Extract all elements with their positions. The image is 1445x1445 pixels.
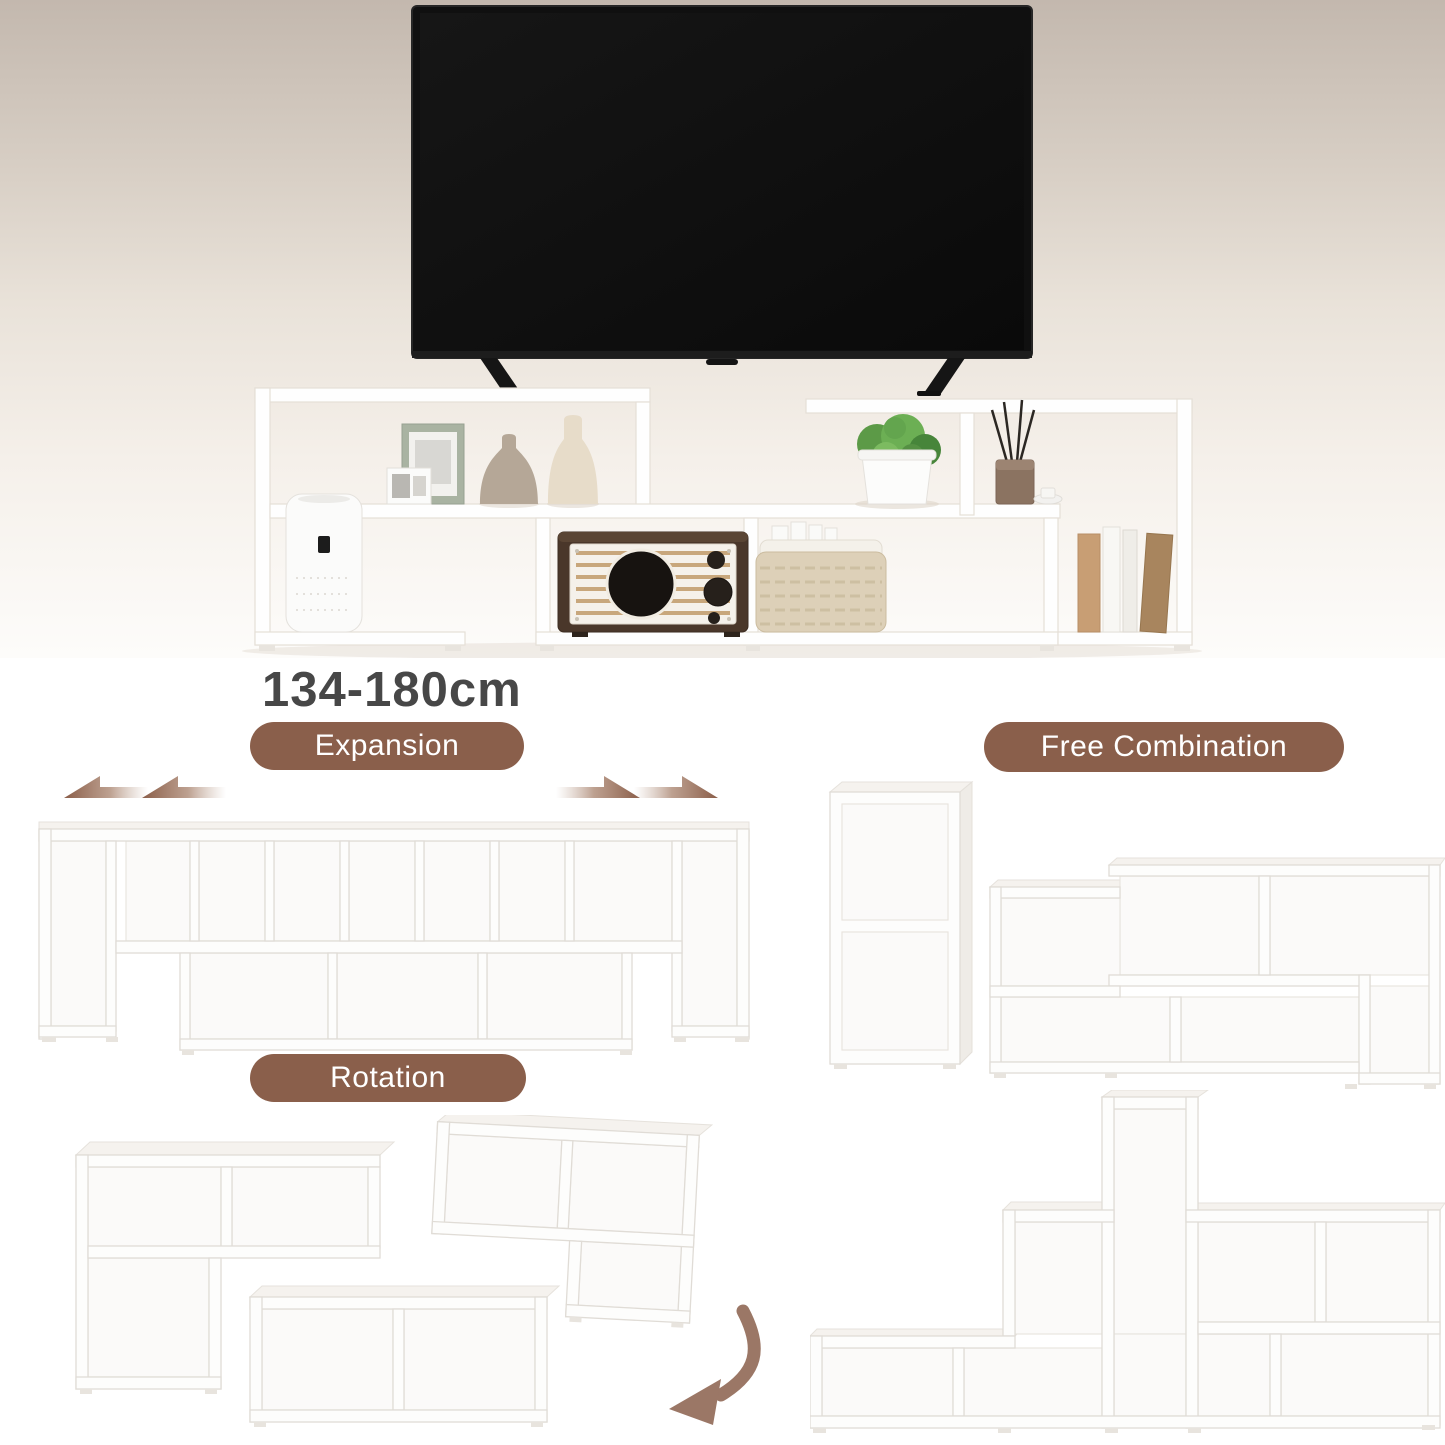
hero-scene xyxy=(0,0,1445,658)
expansion-illustration xyxy=(20,775,760,1065)
free-combination-badge: Free Combination xyxy=(984,722,1344,772)
upright-books xyxy=(1078,527,1173,633)
stepped-combination-illustration xyxy=(810,1090,1445,1440)
size-label: 134-180cm xyxy=(262,662,522,718)
stepped-shelf-drawing xyxy=(810,1090,1445,1433)
air-purifier xyxy=(286,494,362,632)
product-image-canvas: 134-180cm Expansion Free Combination Rot… xyxy=(0,0,1445,1445)
picture-frames xyxy=(387,424,464,504)
tv-logo xyxy=(706,359,738,365)
free-combination-badge-label: Free Combination xyxy=(1041,730,1287,764)
expand-right-arrows-icon xyxy=(556,776,718,798)
expansion-badge-label: Expansion xyxy=(315,729,460,763)
incense-sticks xyxy=(992,400,1034,504)
candle-dish xyxy=(1034,488,1062,504)
rotation-arrow-icon xyxy=(669,1311,754,1425)
storage-basket xyxy=(756,522,886,632)
rotation-badge-label: Rotation xyxy=(330,1061,446,1095)
expansion-badge: Expansion xyxy=(250,722,524,770)
interlocked-units-drawing xyxy=(990,858,1445,1089)
free-combination-illustration xyxy=(810,780,1445,1090)
tall-unit-drawing xyxy=(830,782,972,1069)
expand-left-arrows-icon xyxy=(64,776,226,798)
middle-unit-drawing xyxy=(250,1286,559,1427)
expansion-shelf-drawing xyxy=(39,822,749,1055)
rotation-illustration xyxy=(25,1115,765,1445)
retro-radio xyxy=(558,532,748,637)
hero-photo xyxy=(0,0,1445,658)
vases xyxy=(479,415,599,508)
tv-leg-right xyxy=(924,358,965,395)
tv xyxy=(412,6,1032,396)
potted-plant xyxy=(855,414,941,509)
